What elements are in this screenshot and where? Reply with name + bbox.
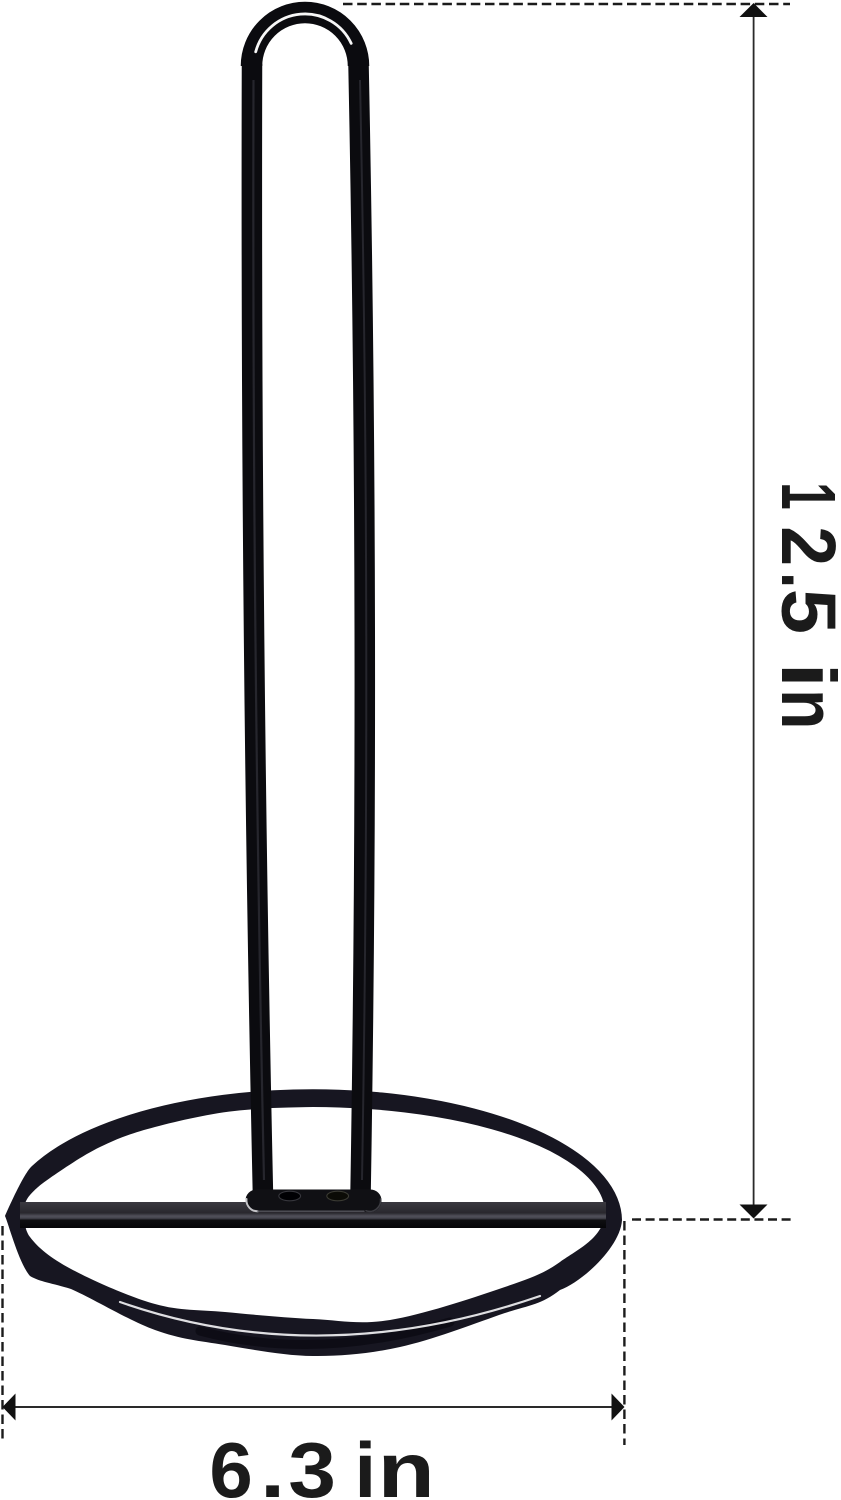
svg-text:3: 3 xyxy=(288,1428,336,1500)
svg-text:2: 2 xyxy=(765,526,841,566)
svg-text:i: i xyxy=(765,662,841,688)
svg-text:.: . xyxy=(765,572,841,588)
svg-text:6: 6 xyxy=(209,1426,252,1500)
svg-text:i: i xyxy=(355,1426,377,1500)
svg-text:.: . xyxy=(260,1426,285,1500)
svg-text:n: n xyxy=(378,1427,435,1500)
svg-text:n: n xyxy=(765,689,841,729)
svg-text:5: 5 xyxy=(766,589,841,634)
svg-text:1: 1 xyxy=(765,482,841,510)
